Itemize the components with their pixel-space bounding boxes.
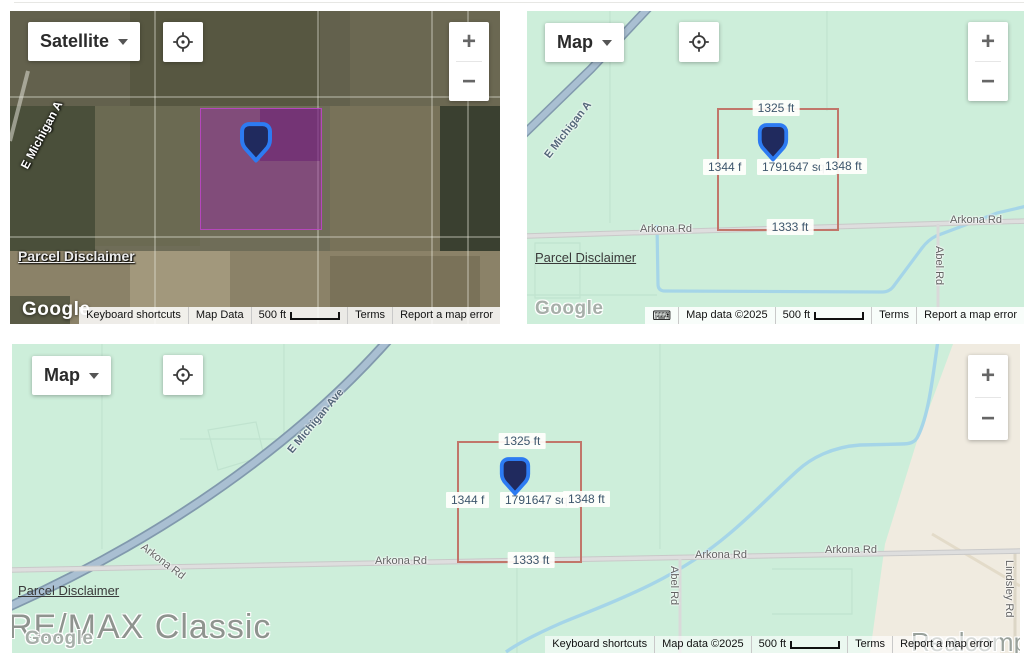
- scale-bar: [290, 312, 340, 320]
- parcel-marker[interactable]: [755, 122, 791, 162]
- target-icon: [172, 364, 194, 386]
- map-attribution-bar: Keyboard shortcuts Map data ©2025 500 ft…: [545, 636, 1000, 653]
- road-label-arkona: Arkona Rd: [695, 549, 747, 561]
- scale-control[interactable]: 500 ft: [775, 307, 872, 324]
- google-logo[interactable]: Google: [535, 298, 603, 320]
- report-map-error-link[interactable]: Report a map error: [892, 636, 1000, 653]
- measurement-top: 1325 ft: [499, 433, 546, 449]
- measurement-top: 1325 ft: [753, 100, 800, 116]
- zoom-in-button[interactable]: +: [968, 355, 1008, 397]
- map-type-label: Satellite: [40, 31, 109, 52]
- keyboard-shortcuts-link[interactable]: Keyboard shortcuts: [79, 307, 188, 324]
- road-label-abel: Abel Rd: [933, 246, 945, 285]
- terms-link[interactable]: Terms: [347, 307, 392, 324]
- map-view-large[interactable]: E Michigan Ave Arkona Rd Arkona Rd Arkon…: [12, 344, 1020, 653]
- zoom-in-button[interactable]: +: [968, 22, 1008, 61]
- road-label-arkona: Arkona Rd: [950, 214, 1002, 226]
- measurement-right: 1348 ft: [563, 491, 610, 507]
- report-map-error-link[interactable]: Report a map error: [916, 307, 1024, 324]
- road-label-arkona: Arkona Rd: [138, 541, 187, 582]
- target-icon: [688, 31, 710, 53]
- parcel-disclaimer-link[interactable]: Parcel Disclaimer: [18, 248, 135, 264]
- road-label-e-michigan: E Michigan A: [542, 99, 594, 160]
- measurement-right: 1348 ft: [820, 158, 867, 174]
- scale-control[interactable]: 500 ft: [751, 636, 848, 653]
- satellite-map[interactable]: E Michigan A Satellite + − Parcel Discla…: [10, 11, 500, 324]
- road-label-e-michigan: E Michigan Ave: [285, 386, 346, 455]
- parcel-disclaimer-link[interactable]: Parcel Disclaimer: [535, 250, 636, 265]
- measurement-left: 1344 f: [446, 492, 489, 508]
- target-icon: [172, 31, 194, 53]
- scale-bar: [814, 312, 864, 320]
- road-label-arkona: Arkona Rd: [375, 555, 427, 567]
- chevron-down-icon: [602, 40, 612, 46]
- zoom-out-button[interactable]: −: [449, 62, 489, 101]
- satellite-terrain: [440, 106, 500, 256]
- google-logo[interactable]: Google: [25, 628, 93, 650]
- my-location-button[interactable]: [163, 22, 203, 62]
- map-type-label: Map: [44, 365, 80, 386]
- scale-label: 500 ft: [759, 636, 787, 653]
- map-attribution-bar: ⌨ Map data ©2025 500 ft Terms Report a m…: [645, 307, 1024, 324]
- road-label-arkona: Arkona Rd: [825, 544, 877, 556]
- chevron-down-icon: [89, 373, 99, 379]
- zoom-control: + −: [968, 22, 1008, 101]
- map-type-label: Map: [557, 32, 593, 53]
- road-label-arkona: Arkona Rd: [640, 223, 692, 235]
- zoom-control: + −: [449, 22, 489, 101]
- keyboard-shortcuts-button[interactable]: ⌨: [645, 307, 678, 324]
- map-data-link[interactable]: Map data ©2025: [678, 307, 775, 324]
- chevron-down-icon: [118, 39, 128, 45]
- page: E Michigan A Satellite + − Parcel Discla…: [0, 0, 1024, 653]
- measurement-bottom: 1333 ft: [767, 219, 814, 235]
- satellite-terrain: [95, 106, 200, 246]
- my-location-button[interactable]: [679, 22, 719, 62]
- keyboard-shortcuts-link[interactable]: Keyboard shortcuts: [545, 636, 654, 653]
- road-label-abel: Abel Rd: [668, 566, 680, 605]
- zoom-in-button[interactable]: +: [449, 22, 489, 61]
- map-type-button[interactable]: Satellite: [28, 22, 140, 61]
- scale-label: 500 ft: [259, 307, 287, 324]
- zoom-control: + −: [968, 355, 1008, 440]
- my-location-button[interactable]: [163, 355, 203, 395]
- scale-label: 500 ft: [783, 307, 811, 324]
- measurement-left: 1344 f: [703, 159, 746, 175]
- terms-link[interactable]: Terms: [847, 636, 892, 653]
- map-type-button[interactable]: Map: [32, 356, 111, 395]
- satellite-terrain: [130, 11, 320, 106]
- map-data-link[interactable]: Map data ©2025: [654, 636, 751, 653]
- report-map-error-link[interactable]: Report a map error: [392, 307, 500, 324]
- map-type-button[interactable]: Map: [545, 23, 624, 62]
- terms-link[interactable]: Terms: [871, 307, 916, 324]
- scale-bar: [790, 641, 840, 649]
- satellite-terrain: [330, 106, 440, 251]
- parcel-marker[interactable]: [237, 121, 275, 163]
- zoom-out-button[interactable]: −: [968, 62, 1008, 101]
- map-attribution-bar: Keyboard shortcuts Map Data 500 ft Terms…: [79, 307, 500, 324]
- parcel-marker[interactable]: [497, 456, 533, 496]
- map-data-link[interactable]: Map Data: [188, 307, 251, 324]
- top-border-line: [14, 2, 1024, 3]
- measurement-bottom: 1333 ft: [508, 552, 555, 568]
- keyboard-icon: ⌨: [652, 308, 671, 323]
- parcel-disclaimer-link[interactable]: Parcel Disclaimer: [18, 583, 119, 598]
- road-label-lindsley: Lindsley Rd: [1003, 560, 1015, 617]
- scale-control[interactable]: 500 ft: [251, 307, 348, 324]
- map-view-small[interactable]: E Michigan A Arkona Rd Arkona Rd Abel Rd…: [527, 11, 1024, 324]
- zoom-out-button[interactable]: −: [968, 398, 1008, 440]
